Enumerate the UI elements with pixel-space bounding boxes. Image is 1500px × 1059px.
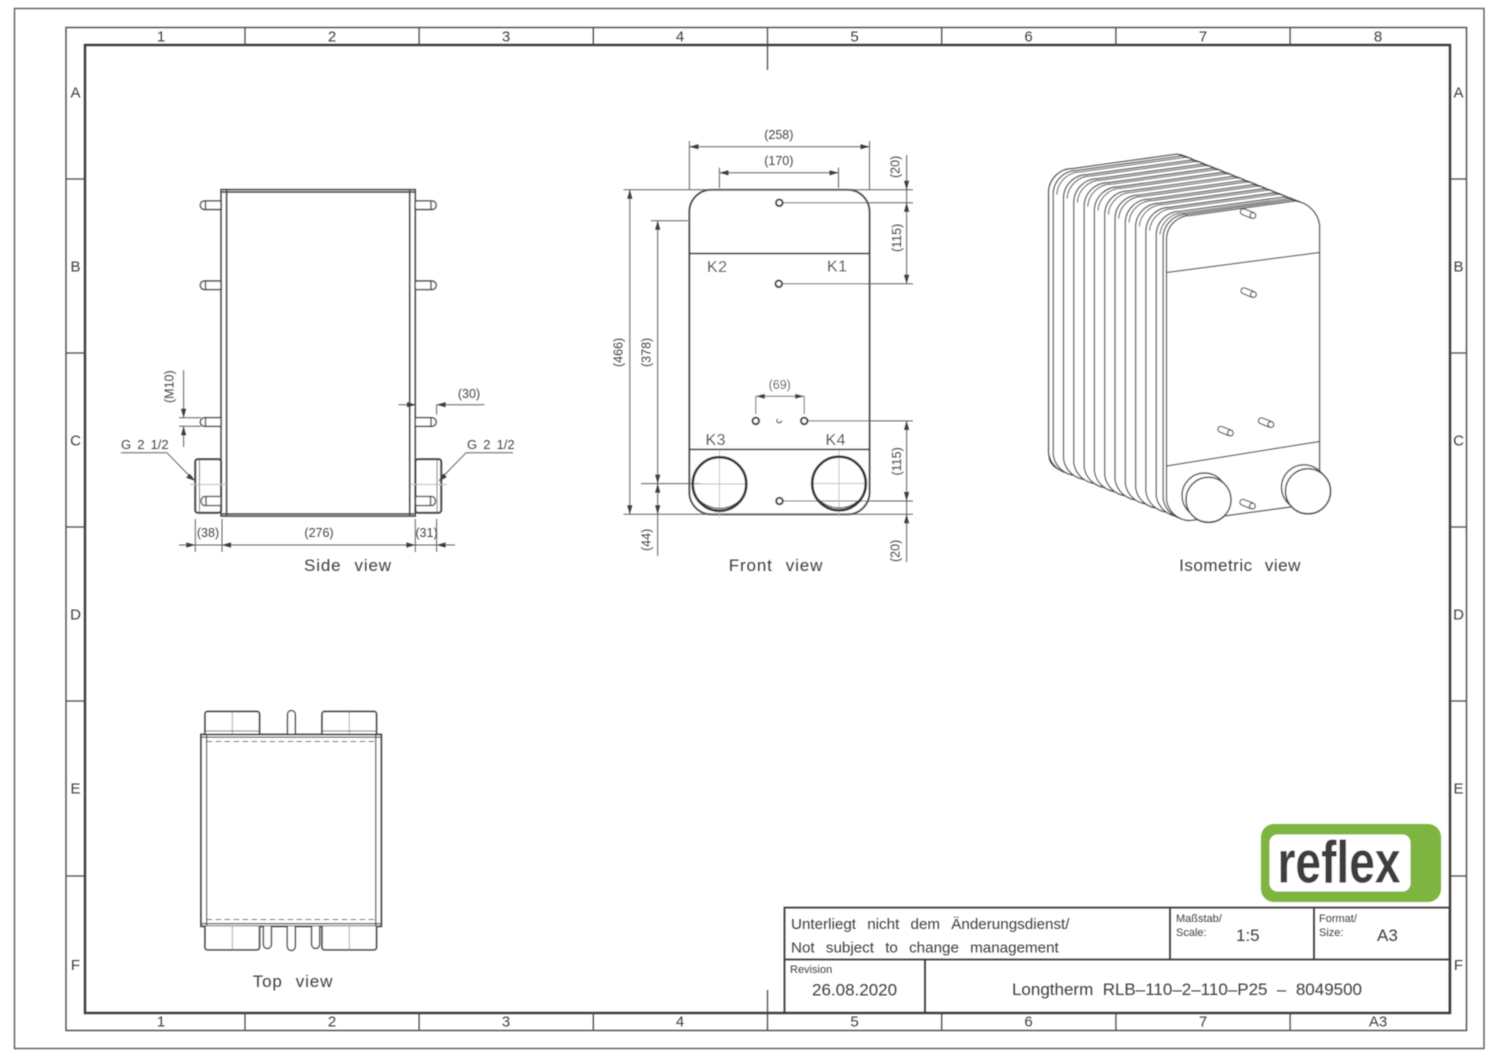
svg-text:3: 3 xyxy=(502,29,510,46)
svg-text:F: F xyxy=(1454,957,1463,974)
svg-text:(258): (258) xyxy=(764,128,793,142)
svg-text:(20): (20) xyxy=(888,156,902,178)
svg-text:E: E xyxy=(70,781,80,798)
svg-text:G 2 1/2: G 2 1/2 xyxy=(467,437,515,452)
svg-text:A: A xyxy=(70,85,80,102)
svg-text:Not subject to change manageme: Not subject to change management xyxy=(791,940,1060,957)
svg-text:8: 8 xyxy=(1374,29,1382,46)
svg-text:G 2 1/2: G 2 1/2 xyxy=(121,437,169,452)
svg-text:Front view: Front view xyxy=(729,556,823,575)
svg-text:(466): (466) xyxy=(612,338,626,367)
svg-text:Side view: Side view xyxy=(304,556,392,575)
svg-text:K4: K4 xyxy=(826,432,847,449)
svg-text:(276): (276) xyxy=(304,526,333,540)
svg-text:A3: A3 xyxy=(1369,1014,1387,1031)
svg-text:Revision: Revision xyxy=(790,964,832,976)
svg-text:B: B xyxy=(70,259,80,276)
svg-text:(44): (44) xyxy=(639,529,653,551)
svg-text:D: D xyxy=(70,607,81,624)
svg-text:Maßstab/: Maßstab/ xyxy=(1176,913,1223,925)
svg-text:(115): (115) xyxy=(890,224,904,252)
svg-text:A3: A3 xyxy=(1377,926,1398,945)
svg-text:C: C xyxy=(1453,433,1464,450)
svg-text:5: 5 xyxy=(850,1014,858,1031)
svg-text:Unterliegt nicht dem Änderungs: Unterliegt nicht dem Änderungsdienst/ xyxy=(791,916,1070,933)
svg-text:D: D xyxy=(1453,607,1464,624)
svg-text:K1: K1 xyxy=(827,259,848,276)
svg-text:(20): (20) xyxy=(888,540,902,562)
svg-text:2: 2 xyxy=(328,29,336,46)
svg-text:(31): (31) xyxy=(415,526,437,540)
svg-text:Isometric view: Isometric view xyxy=(1179,556,1301,575)
svg-text:C: C xyxy=(70,433,81,450)
svg-text:(378): (378) xyxy=(639,338,653,367)
svg-text:6: 6 xyxy=(1024,1014,1032,1031)
svg-text:5: 5 xyxy=(850,29,858,46)
svg-text:B: B xyxy=(1453,259,1463,276)
svg-text:(115): (115) xyxy=(890,447,904,475)
svg-text:K3: K3 xyxy=(706,432,727,449)
svg-text:Size:: Size: xyxy=(1319,927,1343,939)
svg-text:Format/: Format/ xyxy=(1319,913,1358,925)
svg-text:7: 7 xyxy=(1199,1014,1207,1031)
svg-text:1: 1 xyxy=(157,1014,165,1031)
svg-text:K2: K2 xyxy=(707,259,728,276)
svg-text:7: 7 xyxy=(1199,29,1207,46)
svg-text:4: 4 xyxy=(676,1014,684,1031)
svg-text:1:5: 1:5 xyxy=(1236,926,1260,945)
svg-text:(170): (170) xyxy=(764,154,793,168)
svg-text:Top view: Top view xyxy=(253,972,333,991)
svg-text:A: A xyxy=(1453,85,1463,102)
svg-text:4: 4 xyxy=(676,29,684,46)
svg-text:26.08.2020: 26.08.2020 xyxy=(812,981,897,1000)
svg-text:E: E xyxy=(1453,781,1463,798)
svg-text:3: 3 xyxy=(502,1014,510,1031)
svg-text:2: 2 xyxy=(328,1014,336,1031)
svg-text:reflex: reflex xyxy=(1278,830,1401,896)
svg-text:(38): (38) xyxy=(197,526,219,540)
svg-text:(M10): (M10) xyxy=(163,370,177,403)
svg-text:6: 6 xyxy=(1024,29,1032,46)
svg-text:(69): (69) xyxy=(769,378,791,392)
svg-text:Scale:: Scale: xyxy=(1176,927,1207,939)
svg-text:F: F xyxy=(71,957,80,974)
svg-text:(30): (30) xyxy=(458,387,480,401)
svg-text:1: 1 xyxy=(157,29,165,46)
svg-text:Longtherm RLB–110–2–110–P25: Longtherm RLB–110–2–110–P25 – 8049500 xyxy=(1012,980,1362,999)
